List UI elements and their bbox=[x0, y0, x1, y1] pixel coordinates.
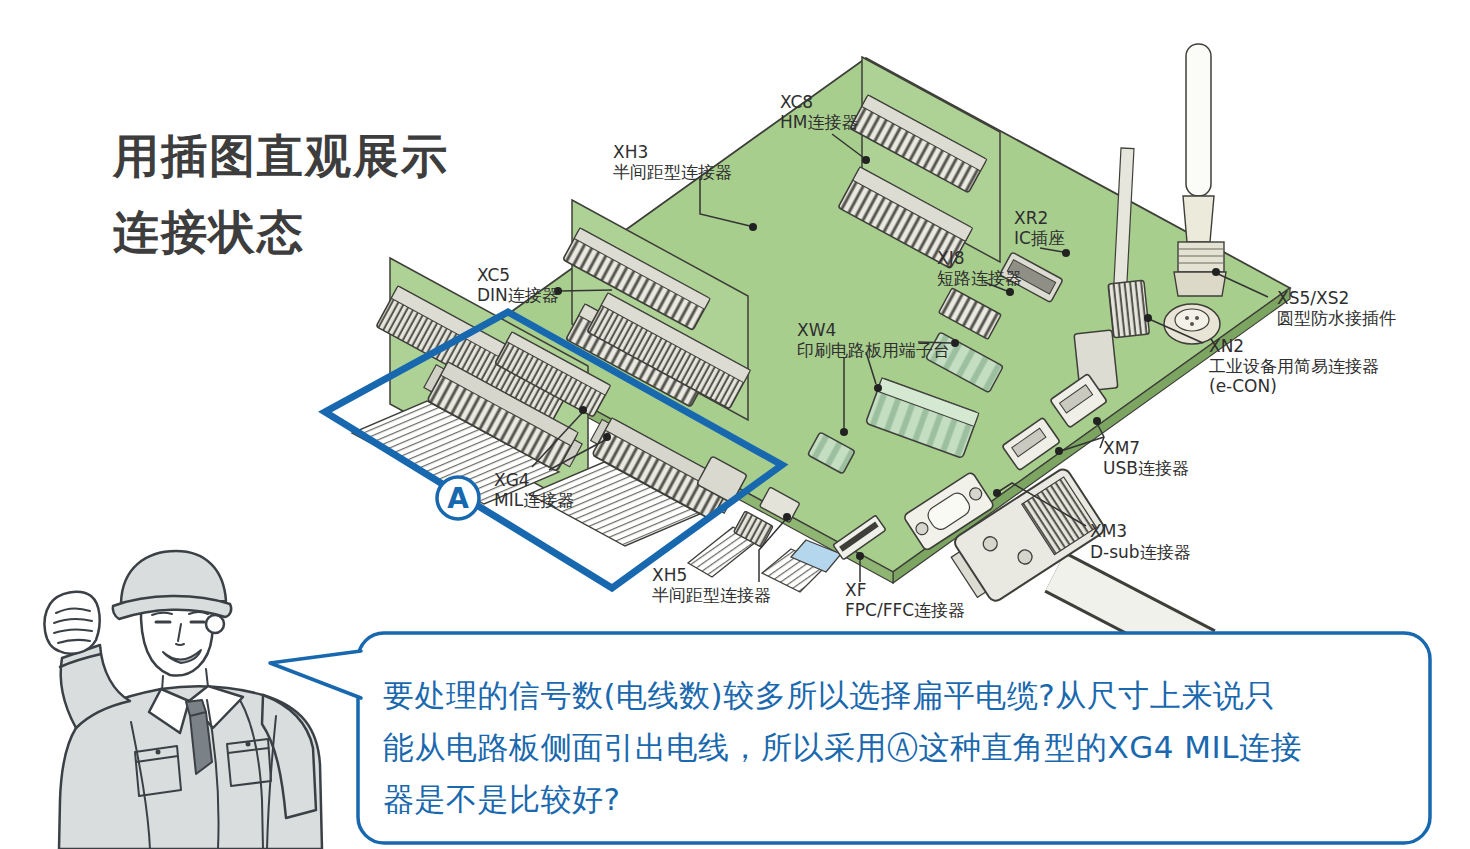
title-line2: 连接状态 bbox=[113, 205, 305, 259]
label-xc8-code: XC8 bbox=[780, 92, 813, 112]
label-xj8-name: 短路连接器 bbox=[937, 268, 1022, 288]
worker-fist bbox=[44, 592, 99, 654]
title-line1: 用插图直观展示 bbox=[112, 129, 449, 183]
label-xf-name: FPC/FFC连接器 bbox=[845, 600, 965, 620]
label-xw4-code: XW4 bbox=[797, 320, 836, 340]
worker-illustration bbox=[44, 551, 322, 849]
speech-line1: 要处理的信号数(电线数)较多所以选择扁平电缆?从尺寸上来说只 bbox=[383, 677, 1276, 713]
label-xn2-name: 工业设备用简易连接器 bbox=[1209, 356, 1379, 376]
label-xs5-code: XS5/XS2 bbox=[1277, 288, 1349, 308]
speech-bubble-tail bbox=[270, 651, 361, 698]
label-xj8-code: XJ8 bbox=[937, 248, 964, 268]
illustration-canvas: A XC8 HM连接器 XH3 半间距型连接器 XC5 DIN连接器 XR2 I… bbox=[0, 0, 1470, 849]
label-xm3-name: D-sub连接器 bbox=[1090, 542, 1191, 562]
label-xr2-code: XR2 bbox=[1014, 208, 1048, 228]
label-xh5-name: 半间距型连接器 bbox=[652, 585, 771, 605]
xn2-econ-plug bbox=[1108, 280, 1149, 337]
worker-ear bbox=[206, 615, 224, 633]
label-xf-code: XF bbox=[845, 580, 866, 600]
label-xg4-name: MIL连接器 bbox=[494, 490, 574, 510]
label-xn2-name2: (e-CON) bbox=[1209, 376, 1277, 396]
label-xm3-code: XM3 bbox=[1090, 521, 1127, 541]
label-xh3-code: XH3 bbox=[613, 142, 648, 162]
label-xw4-name: 印刷电路板用端子台 bbox=[797, 340, 950, 360]
speech-line2: 能从电路板侧面引出电线，所以采用Ⓐ这种直角型的XG4 MIL连接 bbox=[383, 729, 1302, 765]
label-xc8-name: HM连接器 bbox=[780, 112, 858, 132]
speech-line3: 器是不是比较好? bbox=[383, 781, 620, 817]
xs5-antenna bbox=[1174, 44, 1226, 296]
label-xg4-code: XG4 bbox=[494, 470, 530, 490]
label-xh5-code: XH5 bbox=[652, 565, 687, 585]
label-xn2-code: XN2 bbox=[1209, 336, 1244, 356]
label-xm7-name: USB连接器 bbox=[1103, 458, 1189, 478]
label-xs5-name: 圆型防水接插件 bbox=[1277, 308, 1396, 328]
label-xc5-code: XC5 bbox=[477, 265, 510, 285]
speech-bubble: 要处理的信号数(电线数)较多所以选择扁平电缆?从尺寸上来说只 能从电路板侧面引出… bbox=[270, 633, 1430, 843]
label-xm7-code: XM7 bbox=[1103, 438, 1140, 458]
label-xr2-name: IC插座 bbox=[1014, 228, 1065, 248]
connector-diagram: A XC8 HM连接器 XH3 半间距型连接器 XC5 DIN连接器 XR2 I… bbox=[0, 0, 1470, 849]
label-xc5-name: DIN连接器 bbox=[477, 285, 559, 305]
label-xh3-name: 半间距型连接器 bbox=[613, 162, 732, 182]
region-a-label: A bbox=[447, 482, 469, 515]
page-title: 用插图直观展示 连接状态 bbox=[112, 129, 449, 259]
